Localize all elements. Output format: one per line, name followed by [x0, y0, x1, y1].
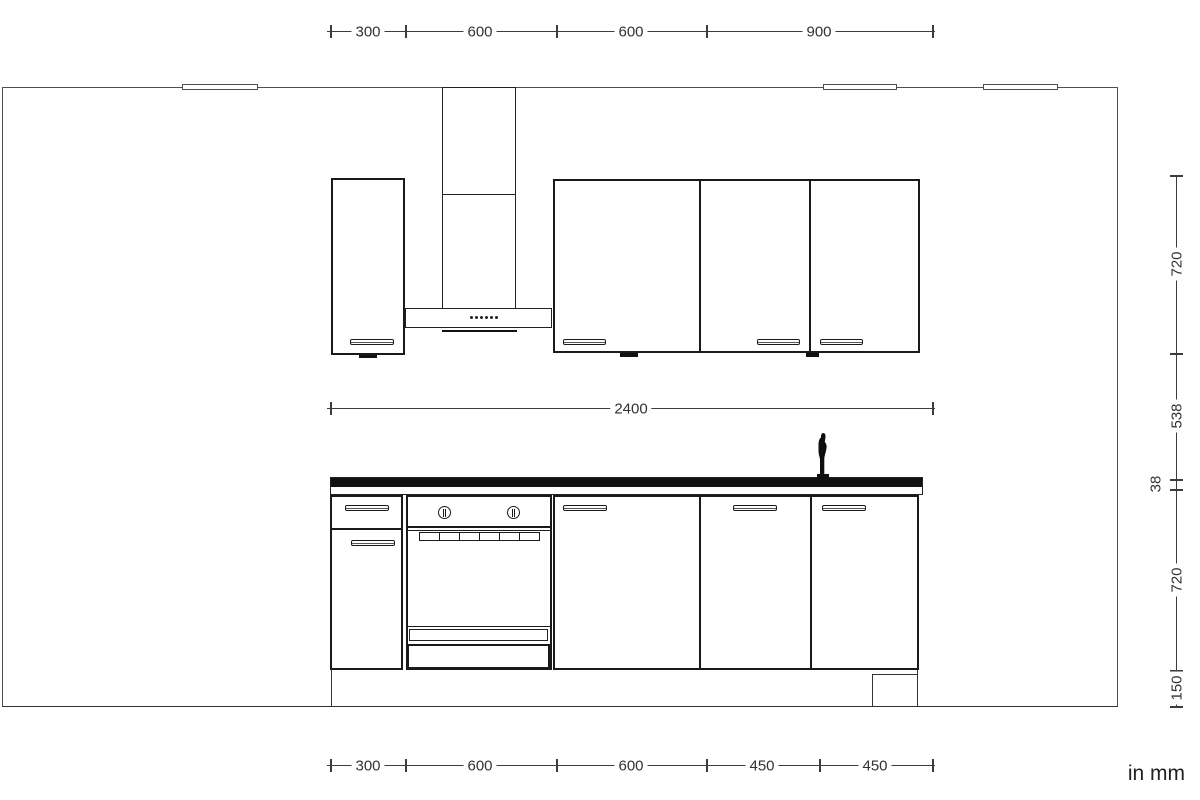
door-handle	[350, 339, 394, 345]
hood-button	[495, 316, 498, 319]
dim-tick	[1170, 489, 1183, 491]
dim-tick	[330, 25, 332, 38]
dim-tick	[330, 759, 332, 772]
dim-tick	[1170, 706, 1183, 708]
left-wall-line	[2, 87, 3, 707]
base-cabinet-left	[330, 495, 403, 670]
hood-button	[485, 316, 488, 319]
door-handle	[820, 339, 863, 345]
oven-bottom-drawer	[407, 644, 550, 669]
right-wall-line	[1117, 87, 1118, 707]
under-cabinet-light	[806, 353, 819, 357]
hood-button	[480, 316, 483, 319]
dim-tick	[706, 759, 708, 772]
hood-button	[470, 316, 473, 319]
cabinet-door-divider	[810, 495, 812, 670]
ceiling-marker	[823, 84, 897, 90]
door-handle	[563, 339, 606, 345]
oven-handle-segment	[500, 533, 520, 540]
countertop-surface	[331, 478, 922, 487]
wall-cabinet-group	[553, 179, 920, 353]
range-hood-chimney-lower	[442, 194, 516, 309]
ceiling-marker	[983, 84, 1058, 90]
dim-label-right-150: 150	[1169, 671, 1186, 704]
knob-slit	[512, 509, 515, 517]
door-handle	[563, 505, 607, 511]
dim-label-right-38: 38	[1148, 472, 1165, 497]
cabinet-door-divider	[699, 495, 701, 670]
faucet-icon	[812, 433, 832, 478]
dim-label-bottom-450b: 450	[858, 758, 891, 775]
hood-button	[475, 316, 478, 319]
dim-label-right-720b: 720	[1169, 563, 1186, 596]
range-hood-chimney-upper	[442, 87, 516, 195]
oven-handle-segment	[520, 533, 539, 540]
unit-label: in mm	[1100, 762, 1185, 786]
under-cabinet-light	[359, 355, 377, 358]
plinth-right-line	[917, 670, 918, 706]
dim-tick	[1170, 479, 1183, 481]
plinth-left-line	[331, 670, 332, 706]
oven-vent-panel	[409, 629, 548, 641]
base-cabinet-group	[553, 495, 919, 670]
dim-tick	[932, 759, 934, 772]
dim-label-top-600a: 600	[463, 24, 496, 41]
drawer-handle	[345, 505, 389, 511]
oven-handle-bar	[419, 532, 540, 541]
kitchen-elevation-drawing: 300 600 600 900 2400 300 600 600 450 450…	[0, 0, 1200, 800]
drawer-divider	[330, 528, 403, 530]
dim-label-bottom-450a: 450	[745, 758, 778, 775]
oven-door-top-line	[408, 530, 550, 531]
cabinet-door-divider	[699, 179, 701, 353]
wall-cabinet-tall	[331, 178, 405, 355]
cabinet-door-divider	[809, 179, 811, 353]
dim-label-right-720a: 720	[1169, 247, 1186, 280]
dim-tick	[556, 759, 558, 772]
door-handle	[733, 505, 777, 511]
dim-label-top-900: 900	[802, 24, 835, 41]
dim-tick	[330, 402, 332, 415]
plinth-end-panel	[872, 674, 917, 706]
oven-knob-icon	[507, 506, 520, 519]
dim-tick	[819, 759, 821, 772]
hood-control-dots-icon	[470, 316, 498, 319]
dim-tick	[405, 25, 407, 38]
dim-label-top-300: 300	[351, 24, 384, 41]
door-handle	[822, 505, 866, 511]
oven-door-bottom-line	[408, 626, 550, 627]
dim-tick	[932, 25, 934, 38]
dim-label-right-538: 538	[1169, 399, 1186, 432]
dim-tick	[932, 402, 934, 415]
oven-handle-segment	[420, 533, 440, 540]
floor-line	[2, 706, 1118, 707]
oven-control-panel-divider	[406, 526, 552, 528]
dim-tick	[1170, 175, 1183, 177]
dim-tick	[1170, 353, 1183, 355]
knob-slit	[443, 509, 446, 517]
under-cabinet-light	[620, 353, 638, 357]
dim-label-bottom-600b: 600	[614, 758, 647, 775]
countertop	[330, 477, 923, 495]
oven-handle-segment	[480, 533, 500, 540]
oven-handle-segment	[440, 533, 460, 540]
door-handle	[351, 540, 395, 546]
door-handle	[757, 339, 800, 345]
dim-tick	[405, 759, 407, 772]
dim-label-top-600b: 600	[614, 24, 647, 41]
oven-knob-icon	[438, 506, 451, 519]
dim-label-bottom-300: 300	[351, 758, 384, 775]
dim-tick	[706, 25, 708, 38]
oven-handle-segment	[460, 533, 480, 540]
dim-label-total-2400: 2400	[610, 401, 651, 418]
ceiling-line	[2, 87, 1118, 88]
hood-button	[490, 316, 493, 319]
hood-lower-rim	[442, 330, 517, 332]
dim-tick	[556, 25, 558, 38]
ceiling-marker	[182, 84, 258, 90]
dim-label-bottom-600a: 600	[463, 758, 496, 775]
